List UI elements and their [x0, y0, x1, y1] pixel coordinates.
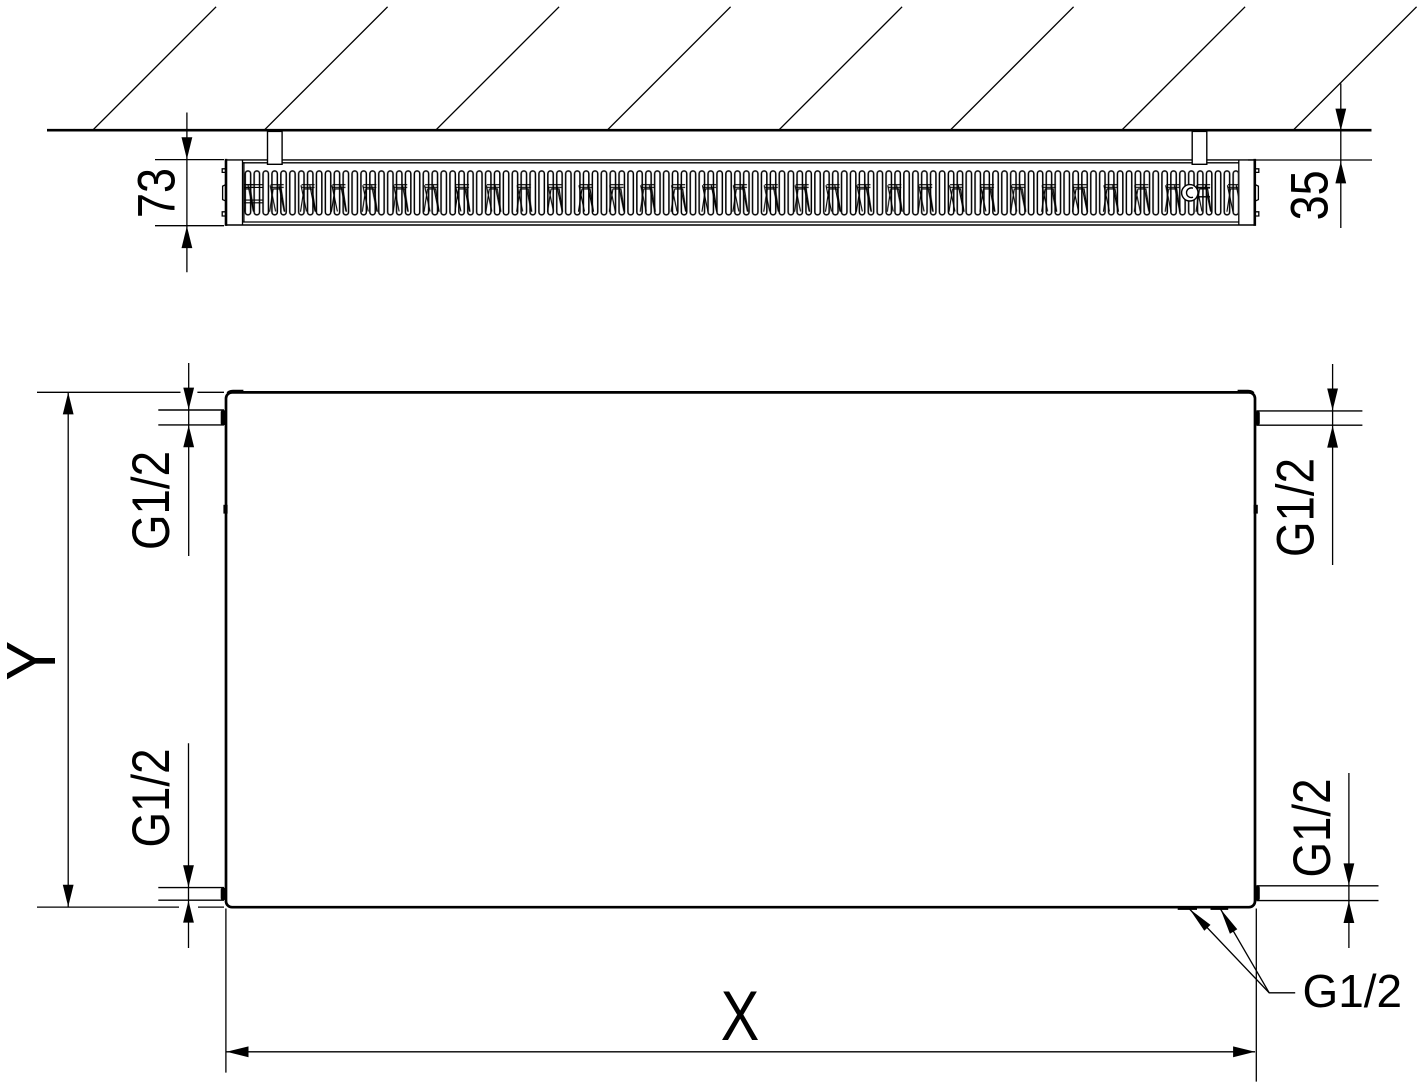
- svg-text:G1/2: G1/2: [122, 749, 181, 848]
- svg-text:G1/2: G1/2: [1283, 779, 1342, 878]
- svg-text:G1/2: G1/2: [122, 451, 181, 550]
- svg-text:73: 73: [128, 168, 187, 218]
- svg-text:35: 35: [1281, 170, 1340, 220]
- svg-text:G1/2: G1/2: [1303, 965, 1403, 1017]
- svg-text:X: X: [721, 976, 760, 1055]
- svg-text:Y: Y: [0, 641, 70, 681]
- svg-text:G1/2: G1/2: [1267, 458, 1326, 557]
